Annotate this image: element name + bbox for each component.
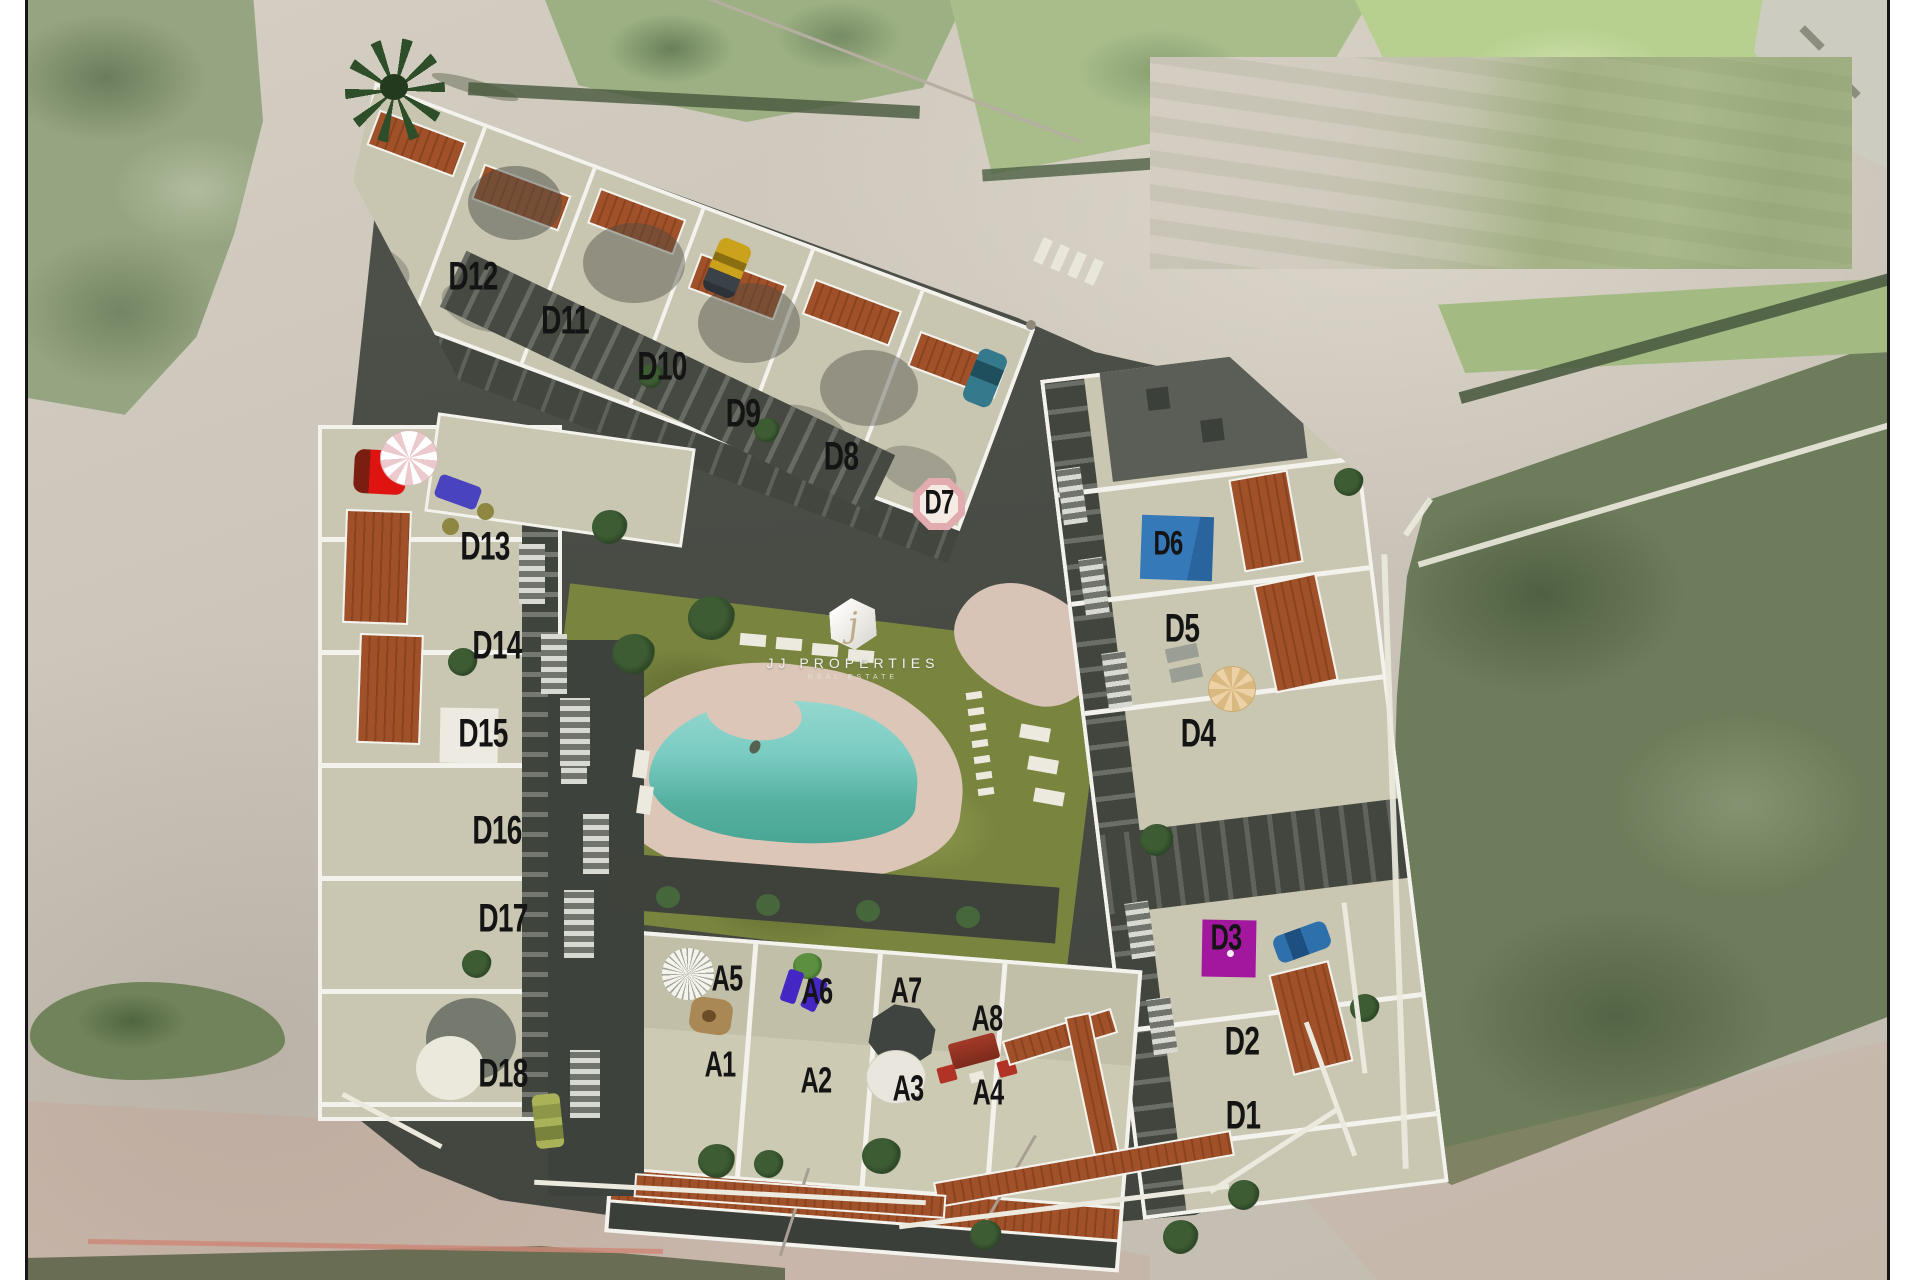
east-mid-alley	[1100, 799, 1408, 915]
building-block-west-D13-D18	[318, 425, 562, 1121]
party-wall	[1138, 1111, 1436, 1153]
party-wall	[1085, 674, 1383, 716]
chimney	[1146, 386, 1171, 411]
west-stair-alley	[522, 429, 558, 1117]
party-wall	[1071, 565, 1369, 607]
pasted-image-patch	[1150, 57, 1852, 269]
site-plan-stage: j JJ PROPERTIES REAL ESTATE D12D11D10D9D…	[0, 0, 1920, 1280]
page-margin-right	[1890, 0, 1920, 1280]
building-block-south-A1-A8	[604, 930, 1142, 1273]
page-margin-left	[0, 0, 25, 1280]
party-wall	[1124, 992, 1422, 1034]
photo-border-left	[25, 0, 28, 1280]
chimney	[1200, 418, 1225, 443]
